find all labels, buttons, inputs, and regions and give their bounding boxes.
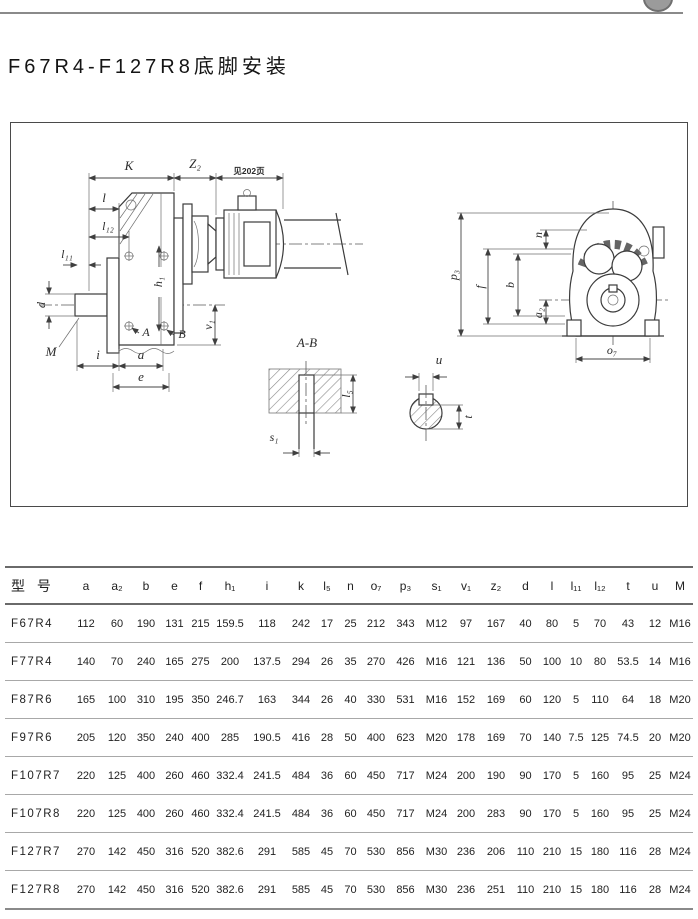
dim-cell: 116 [613,833,643,871]
column-header: l₁₂ [587,567,613,604]
table-row: F127R8270142450316520382.629158545705308… [5,871,693,910]
dimension-table-body: F67R411260190131215159.51182421725212343… [5,604,693,909]
dim-cell: 70 [339,871,362,910]
dim-cell: M24 [667,833,693,871]
dim-cell: 45 [315,871,339,910]
dim-cell: 169 [480,681,512,719]
dim-cell: 163 [247,681,287,719]
dim-cell: M16 [667,604,693,643]
table-row: F127R7270142450316520382.629158545705308… [5,833,693,871]
dim-cell: 400 [362,719,390,757]
dim-cell: 5 [565,681,587,719]
column-header: v₁ [452,567,480,604]
dimension-table-head: 型 号aa₂befh₁ikl₅no₇p₃s₁v₁z₂dll₁₁l₁₂tuM [5,567,693,604]
dim-cell: 180 [587,871,613,910]
table-row: F107R7220125400260460332.4241.5484366045… [5,757,693,795]
dim-cell: 110 [587,681,613,719]
dim-cell: 60 [512,681,539,719]
dim-cell: 136 [480,643,512,681]
dim-cell: 152 [452,681,480,719]
dim-cell: 460 [188,795,213,833]
dim-cell: 170 [539,795,565,833]
dim-cell: 140 [539,719,565,757]
table-row: F87R6165100310195350246.7163344264033053… [5,681,693,719]
dim-cell: 50 [512,643,539,681]
dim-cell: 260 [161,757,188,795]
dim-cell: 14 [643,643,667,681]
dim-cell: 167 [480,604,512,643]
technical-drawing-panel: K Z₂ 见202页 l l₁₂ l₁₁ d M h₁ A B v₁ [10,122,688,507]
dim-cell: 623 [390,719,421,757]
dim-cell: 36 [315,795,339,833]
dim-cell: 220 [69,757,103,795]
dim-label-u: u [436,352,443,367]
dim-label-p3: p₃ [446,270,460,281]
dim-cell: M16 [421,681,452,719]
dim-cell: 110 [512,833,539,871]
dim-cell: 142 [103,833,131,871]
dim-cell: 190 [131,604,161,643]
dim-cell: 426 [390,643,421,681]
dim-cell: 60 [339,795,362,833]
dim-cell: 530 [362,833,390,871]
dim-cell: 285 [213,719,247,757]
dim-cell: 330 [362,681,390,719]
dim-cell: 50 [339,719,362,757]
dim-cell: 18 [643,681,667,719]
column-header: p₃ [390,567,421,604]
model-cell: F97R6 [5,719,69,757]
column-header: o₇ [362,567,390,604]
dim-cell: 460 [188,757,213,795]
dim-cell: 97 [452,604,480,643]
dim-cell: M16 [667,643,693,681]
dim-cell: 17 [315,604,339,643]
dim-cell: 270 [69,833,103,871]
top-rule [0,12,683,14]
dim-cell: 212 [362,604,390,643]
model-cell: F77R4 [5,643,69,681]
dim-cell: 200 [213,643,247,681]
dim-cell: 200 [452,795,480,833]
column-header: k [287,567,315,604]
dim-cell: 12 [643,604,667,643]
see-page-note: 见202页 [233,166,265,176]
dim-cell: 350 [188,681,213,719]
section-mark-a: A [141,325,150,339]
column-header: z₂ [480,567,512,604]
dim-cell: 332.4 [213,757,247,795]
dim-cell: 60 [103,604,131,643]
dim-cell: 70 [587,604,613,643]
column-header: f [188,567,213,604]
dim-cell: 43 [613,604,643,643]
dim-cell: 70 [512,719,539,757]
dim-cell: 205 [69,719,103,757]
column-header: e [161,567,188,604]
dim-cell: 5 [565,604,587,643]
dim-cell: M12 [421,604,452,643]
dim-cell: 80 [539,604,565,643]
dim-cell: M20 [667,681,693,719]
dim-cell: 240 [161,719,188,757]
dim-cell: 140 [69,643,103,681]
section-mark-b: B [178,327,186,341]
dim-label-a2: a₂ [531,308,545,318]
dim-cell: 275 [188,643,213,681]
dim-cell: 100 [103,681,131,719]
page-title: F67R4-F127R8底脚安装 [8,50,290,79]
table-row: F107R8220125400260460332.4241.5484366045… [5,795,693,833]
shaft-cross-section: u t [405,352,475,441]
dim-cell: 210 [539,833,565,871]
dim-cell: 220 [69,795,103,833]
dim-label-s1: s₁ [270,430,279,444]
section-ab: A-B l₅ s₁ [269,335,357,457]
column-header: t [613,567,643,604]
dim-cell: 520 [188,871,213,910]
dim-cell: 131 [161,604,188,643]
dim-cell: 717 [390,795,421,833]
dim-cell: M16 [421,643,452,681]
dim-label-b: b [503,282,517,288]
dim-cell: 64 [613,681,643,719]
dim-cell: 343 [390,604,421,643]
dim-cell: 585 [287,833,315,871]
dim-cell: 90 [512,795,539,833]
dim-cell: 531 [390,681,421,719]
dim-label-v1: v₁ [201,320,215,330]
section-title: A-B [296,335,317,350]
dim-cell: 484 [287,795,315,833]
dim-cell: 112 [69,604,103,643]
dim-cell: 200 [452,757,480,795]
dim-label-o7: o₇ [607,343,617,357]
logo-icon [643,0,673,12]
dimension-table: 型 号aa₂befh₁ikl₅no₇p₃s₁v₁z₂dll₁₁l₁₂tuM F6… [5,566,693,910]
dim-cell: 195 [161,681,188,719]
dim-cell: 159.5 [213,604,247,643]
column-header: s₁ [421,567,452,604]
dim-cell: 215 [188,604,213,643]
dim-cell: 241.5 [247,795,287,833]
column-header: i [247,567,287,604]
dimension-table-section: 型 号aa₂befh₁ikl₅no₇p₃s₁v₁z₂dll₁₁l₁₂tuM F6… [5,566,693,910]
dim-cell: 484 [287,757,315,795]
dim-label-e: e [138,369,144,384]
table-row: F67R411260190131215159.51182421725212343… [5,604,693,643]
dim-cell: M24 [667,757,693,795]
dim-cell: 74.5 [613,719,643,757]
dim-label-f: f [473,284,487,289]
dim-cell: 270 [362,643,390,681]
dim-cell: 35 [339,643,362,681]
dim-label-l: l [102,190,106,205]
dim-cell: 5 [565,795,587,833]
dim-cell: 450 [131,833,161,871]
dim-cell: 25 [339,604,362,643]
dim-cell: 382.6 [213,833,247,871]
dim-label-k: K [124,158,135,173]
column-header: b [131,567,161,604]
dim-cell: 344 [287,681,315,719]
technical-drawing: K Z₂ 见202页 l l₁₂ l₁₁ d M h₁ A B v₁ [11,123,687,506]
dim-cell: 125 [587,719,613,757]
column-header: a₂ [103,567,131,604]
column-header: a [69,567,103,604]
column-header: M [667,567,693,604]
dim-cell: 310 [131,681,161,719]
side-view: K Z₂ 见202页 l l₁₂ l₁₁ d M h₁ A B v₁ [34,156,363,392]
dim-cell: M30 [421,871,452,910]
dim-cell: 125 [103,757,131,795]
dim-cell: 116 [613,871,643,910]
column-header: h₁ [213,567,247,604]
dim-cell: 70 [103,643,131,681]
dim-cell: 856 [390,871,421,910]
dim-cell: 236 [452,833,480,871]
dim-cell: 530 [362,871,390,910]
dim-cell: 80 [587,643,613,681]
dim-cell: 90 [512,757,539,795]
model-cell: F107R8 [5,795,69,833]
column-header: u [643,567,667,604]
dim-cell: 160 [587,795,613,833]
dim-cell: 332.4 [213,795,247,833]
model-cell: F87R6 [5,681,69,719]
dim-cell: 110 [512,871,539,910]
dim-cell: 585 [287,871,315,910]
column-header: l [539,567,565,604]
dim-cell: 400 [131,757,161,795]
column-header: 型 号 [5,567,69,604]
dim-cell: 520 [188,833,213,871]
dim-cell: 28 [315,719,339,757]
dim-cell: 241.5 [247,757,287,795]
dim-cell: 53.5 [613,643,643,681]
dim-cell: 7.5 [565,719,587,757]
dim-label-h1: h₁ [151,277,165,287]
table-row: F77R414070240165275200137.52942635270426… [5,643,693,681]
dim-cell: 450 [362,757,390,795]
dim-cell: 15 [565,833,587,871]
table-row: F97R6205120350240400285190.5416285040062… [5,719,693,757]
dim-cell: 25 [643,795,667,833]
column-header: d [512,567,539,604]
dim-cell: 190 [480,757,512,795]
dim-cell: 40 [512,604,539,643]
dim-cell: M24 [667,871,693,910]
dim-cell: 270 [69,871,103,910]
dim-cell: 178 [452,719,480,757]
dim-cell: 25 [643,757,667,795]
dim-label-l11: l₁₁ [61,247,73,261]
dim-cell: 28 [643,871,667,910]
dim-label-a: a [138,347,145,362]
dim-cell: 165 [69,681,103,719]
dim-label-l5: l₅ [339,390,353,398]
dim-cell: 120 [539,681,565,719]
dim-cell: M20 [421,719,452,757]
dim-cell: 70 [339,833,362,871]
dim-cell: 28 [643,833,667,871]
dim-cell: 45 [315,833,339,871]
dim-cell: 251 [480,871,512,910]
dim-cell: 180 [587,833,613,871]
dim-cell: 400 [188,719,213,757]
dim-cell: 40 [339,681,362,719]
dim-cell: 170 [539,757,565,795]
model-cell: F127R8 [5,871,69,910]
dim-cell: 416 [287,719,315,757]
dim-cell: 856 [390,833,421,871]
dim-cell: 60 [339,757,362,795]
header-row: 型 号aa₂befh₁ikl₅no₇p₃s₁v₁z₂dll₁₁l₁₂tuM [5,567,693,604]
dim-label-m: M [45,344,58,359]
dim-cell: 142 [103,871,131,910]
dim-cell: 260 [161,795,188,833]
dim-cell: 294 [287,643,315,681]
dim-cell: 15 [565,871,587,910]
dim-cell: 283 [480,795,512,833]
dim-cell: 125 [103,795,131,833]
dim-cell: M20 [667,719,693,757]
dim-cell: 450 [131,871,161,910]
dim-cell: 206 [480,833,512,871]
dim-cell: 118 [247,604,287,643]
dim-cell: 350 [131,719,161,757]
dim-label-l12: l₁₂ [102,219,114,233]
model-cell: F107R7 [5,757,69,795]
dim-cell: 291 [247,871,287,910]
dim-cell: 10 [565,643,587,681]
dim-cell: 121 [452,643,480,681]
dim-cell: 160 [587,757,613,795]
dim-cell: 236 [452,871,480,910]
dim-cell: 120 [103,719,131,757]
column-header: l₅ [315,567,339,604]
dim-cell: M24 [667,795,693,833]
dim-cell: 242 [287,604,315,643]
dim-cell: 717 [390,757,421,795]
dim-cell: 5 [565,757,587,795]
dim-cell: 316 [161,833,188,871]
dim-cell: 210 [539,871,565,910]
dim-cell: 95 [613,757,643,795]
dim-cell: 400 [131,795,161,833]
dim-cell: 95 [613,795,643,833]
model-cell: F67R4 [5,604,69,643]
dim-cell: M24 [421,757,452,795]
dim-label-t: t [461,415,475,419]
dim-cell: 240 [131,643,161,681]
dim-label-z2: Z₂ [189,156,201,171]
column-header: l₁₁ [565,567,587,604]
dim-cell: 165 [161,643,188,681]
dim-cell: 26 [315,681,339,719]
dim-cell: M30 [421,833,452,871]
dim-label-n: n [531,232,545,238]
dim-cell: 100 [539,643,565,681]
model-cell: F127R7 [5,833,69,871]
dim-cell: 20 [643,719,667,757]
front-view: p₃ f b n a₂ o₇ [446,201,671,363]
dim-cell: 190.5 [247,719,287,757]
dim-cell: 316 [161,871,188,910]
dim-label-d: d [34,301,48,308]
dim-cell: 26 [315,643,339,681]
dim-cell: 137.5 [247,643,287,681]
dim-cell: 36 [315,757,339,795]
dim-cell: M24 [421,795,452,833]
dim-cell: 246.7 [213,681,247,719]
dim-cell: 382.6 [213,871,247,910]
dim-cell: 450 [362,795,390,833]
dim-cell: 291 [247,833,287,871]
dim-label-i: i [96,347,100,362]
column-header: n [339,567,362,604]
dim-cell: 169 [480,719,512,757]
